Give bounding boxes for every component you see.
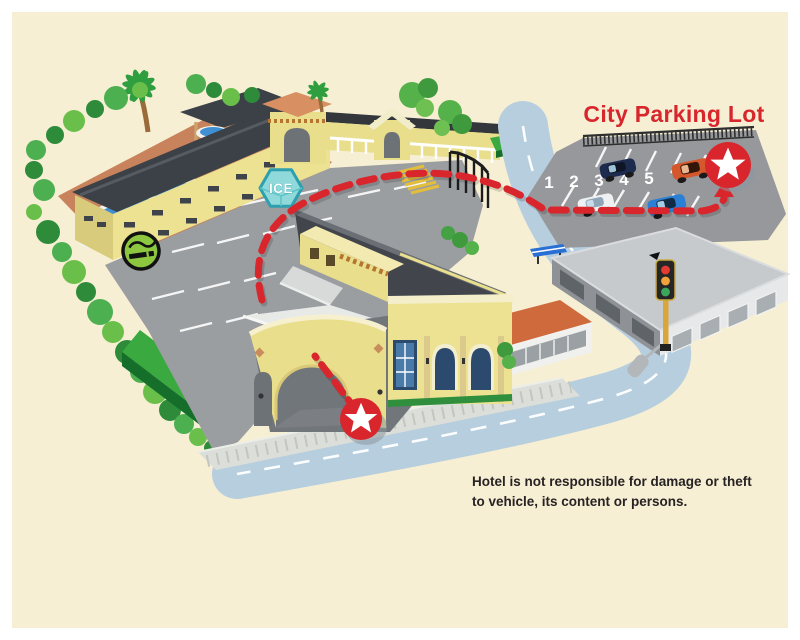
disclaimer-line-2: to vehicle, its content or persons. bbox=[472, 494, 687, 509]
parking-space-number-2: 2 bbox=[569, 172, 578, 191]
disclaimer-line-1: Hotel is not responsible for damage or t… bbox=[472, 474, 752, 489]
ice-machine-icon: ICE bbox=[260, 170, 302, 206]
lobby-building bbox=[388, 294, 516, 407]
parking-space-number-1: 1 bbox=[544, 173, 553, 192]
hotel-direction-map: 1 2 3 4 5 bbox=[0, 0, 800, 640]
map-canvas: 1 2 3 4 5 bbox=[0, 0, 800, 640]
map-title: City Parking Lot bbox=[583, 101, 764, 127]
ice-label: ICE bbox=[269, 181, 293, 196]
parking-space-number-5: 5 bbox=[644, 169, 653, 188]
